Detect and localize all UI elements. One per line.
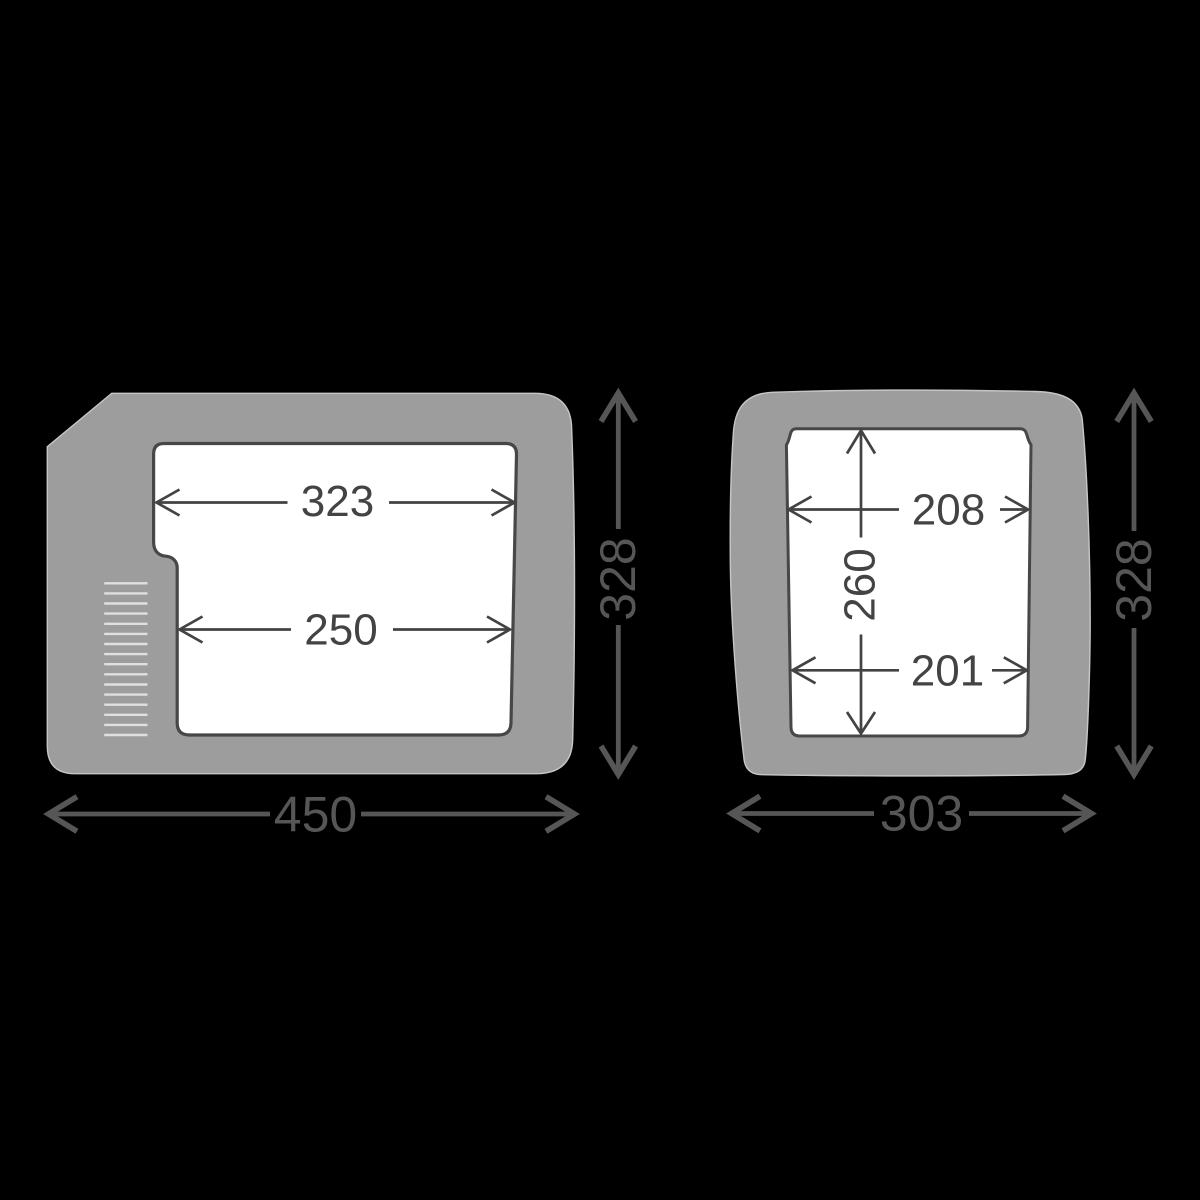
svg-text:328: 328 [590, 537, 646, 620]
svg-text:303: 303 [880, 786, 963, 842]
svg-text:208: 208 [912, 486, 985, 535]
svg-text:323: 323 [301, 477, 374, 526]
svg-text:201: 201 [911, 646, 984, 695]
svg-text:328: 328 [1106, 538, 1162, 621]
svg-text:250: 250 [304, 606, 377, 655]
svg-text:450: 450 [274, 787, 357, 843]
svg-text:260: 260 [836, 548, 885, 621]
